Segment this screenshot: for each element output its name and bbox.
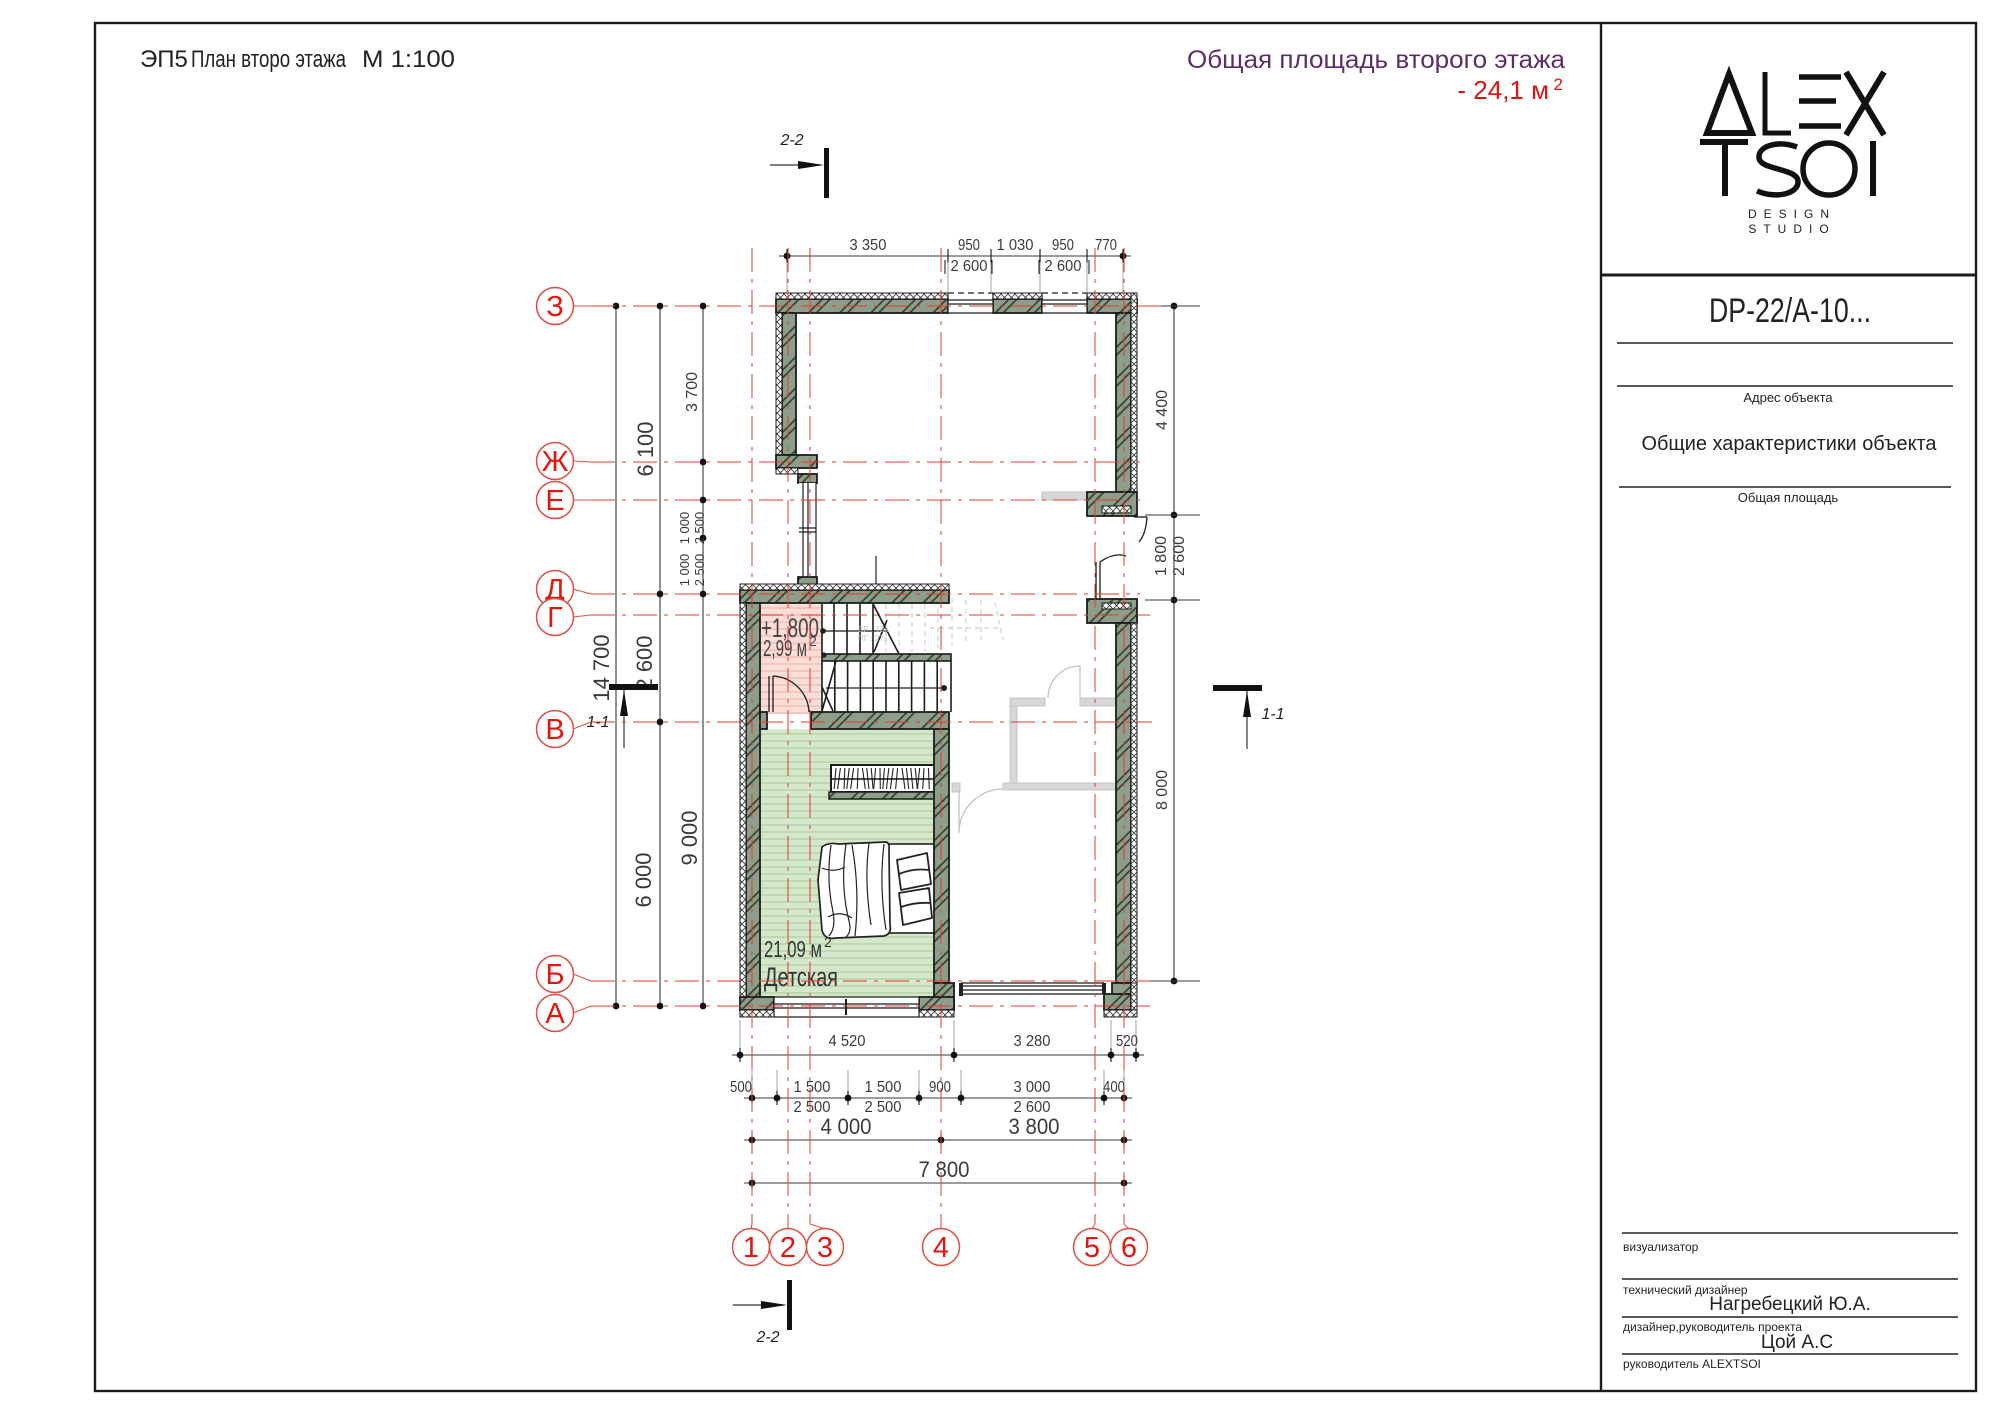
svg-text:2 600: 2 600 bbox=[951, 258, 988, 275]
svg-text:3 350: 3 350 bbox=[850, 237, 887, 254]
svg-text:14 700: 14 700 bbox=[589, 634, 614, 701]
svg-text:Адрес объекта: Адрес объекта bbox=[1743, 390, 1833, 405]
svg-text:2-2: 2-2 bbox=[755, 1329, 779, 1346]
svg-text:21,09 м: 21,09 м bbox=[764, 936, 822, 962]
svg-text:визуализатор: визуализатор bbox=[1623, 1240, 1699, 1254]
svg-text:Ж: Ж bbox=[542, 446, 569, 478]
svg-text:950: 950 bbox=[958, 237, 980, 254]
svg-text:3 000: 3 000 bbox=[1014, 1079, 1051, 1096]
svg-text:400: 400 bbox=[1103, 1079, 1125, 1096]
svg-text:Цой А.С: Цой А.С bbox=[1761, 1332, 1833, 1353]
svg-text:М 1:100: М 1:100 bbox=[362, 46, 455, 73]
svg-text:8 000: 8 000 bbox=[1154, 770, 1171, 810]
svg-text:2,99 м: 2,99 м bbox=[763, 635, 807, 661]
svg-text:770: 770 bbox=[1095, 237, 1117, 254]
svg-text:3: 3 bbox=[817, 1232, 833, 1264]
svg-text:2: 2 bbox=[780, 1232, 796, 1264]
svg-text:Нагребецкий Ю.А.: Нагребецкий Ю.А. bbox=[1709, 1294, 1871, 1315]
svg-text:STUDIO: STUDIO bbox=[1748, 222, 1835, 236]
svg-text:6 000: 6 000 bbox=[631, 852, 656, 907]
svg-text:4 000: 4 000 bbox=[821, 1114, 872, 1139]
svg-text:руководитель ALEXTSOI: руководитель ALEXTSOI bbox=[1623, 1357, 1761, 1371]
svg-text:Е: Е bbox=[545, 485, 564, 517]
svg-text:2 600: 2 600 bbox=[632, 635, 657, 690]
svg-text:ВР : 18х: ВР : 18х bbox=[858, 625, 888, 634]
svg-text:6: 6 bbox=[1121, 1232, 1137, 1264]
svg-text:2-2: 2-2 bbox=[779, 132, 803, 149]
svg-text:1 000: 1 000 bbox=[677, 554, 692, 587]
svg-text:5: 5 bbox=[1084, 1232, 1100, 1264]
svg-text:900: 900 bbox=[929, 1079, 951, 1096]
svg-text:DP-22/A-10...: DP-22/A-10... bbox=[1709, 292, 1871, 330]
svg-text:Г: Г bbox=[547, 602, 563, 634]
svg-text:3 280: 3 280 bbox=[1014, 1033, 1051, 1050]
svg-text:2: 2 bbox=[824, 934, 832, 950]
svg-text:1 030: 1 030 bbox=[997, 237, 1034, 254]
svg-text:З: З bbox=[546, 291, 564, 323]
svg-text:А: А bbox=[545, 998, 565, 1030]
svg-text:ЭП5: ЭП5 bbox=[140, 46, 188, 73]
svg-text:3 800: 3 800 bbox=[1009, 1114, 1060, 1139]
svg-text:6 100: 6 100 bbox=[633, 421, 658, 476]
svg-text:- 24,1 м: - 24,1 м bbox=[1457, 75, 1549, 105]
svg-text:1 000: 1 000 bbox=[677, 512, 692, 545]
svg-text:520: 520 bbox=[1116, 1033, 1138, 1050]
svg-text:9 000: 9 000 bbox=[677, 810, 702, 865]
svg-text:План второ этажа: План второ этажа bbox=[191, 46, 347, 73]
svg-text:500: 500 bbox=[730, 1079, 752, 1096]
svg-text:2: 2 bbox=[1554, 75, 1563, 94]
svg-text:Детская: Детская bbox=[764, 962, 838, 992]
svg-text:7 800: 7 800 bbox=[919, 1157, 970, 1182]
svg-text:Б: Б bbox=[545, 959, 564, 991]
svg-text:2 500: 2 500 bbox=[692, 512, 707, 545]
svg-text:Общая площадь второго этажа: Общая площадь второго этажа bbox=[1187, 46, 1565, 74]
svg-text:950: 950 bbox=[1052, 237, 1074, 254]
svg-text:2 500: 2 500 bbox=[692, 554, 707, 587]
svg-text:1-1: 1-1 bbox=[1261, 706, 1284, 723]
svg-text:1: 1 bbox=[743, 1232, 759, 1264]
svg-text:2 600: 2 600 bbox=[1045, 258, 1082, 275]
svg-text:DESIGN: DESIGN bbox=[1748, 207, 1836, 221]
svg-text:1 500: 1 500 bbox=[865, 1079, 902, 1096]
svg-text:4 400: 4 400 bbox=[1154, 390, 1171, 430]
svg-text:ПГ : 27х: ПГ : 27х bbox=[858, 634, 888, 643]
svg-text:1 800: 1 800 bbox=[1153, 536, 1170, 576]
svg-text:3 700: 3 700 bbox=[684, 372, 701, 412]
svg-text:Общие характеристики объекта: Общие характеристики объекта bbox=[1642, 433, 1938, 455]
svg-text:Общая площадь: Общая площадь bbox=[1738, 490, 1839, 505]
svg-text:1 500: 1 500 bbox=[794, 1079, 831, 1096]
svg-text:2 600: 2 600 bbox=[1171, 536, 1188, 576]
svg-text:4: 4 bbox=[933, 1232, 949, 1264]
svg-text:4 520: 4 520 bbox=[829, 1033, 866, 1050]
svg-text:В: В bbox=[545, 714, 564, 746]
